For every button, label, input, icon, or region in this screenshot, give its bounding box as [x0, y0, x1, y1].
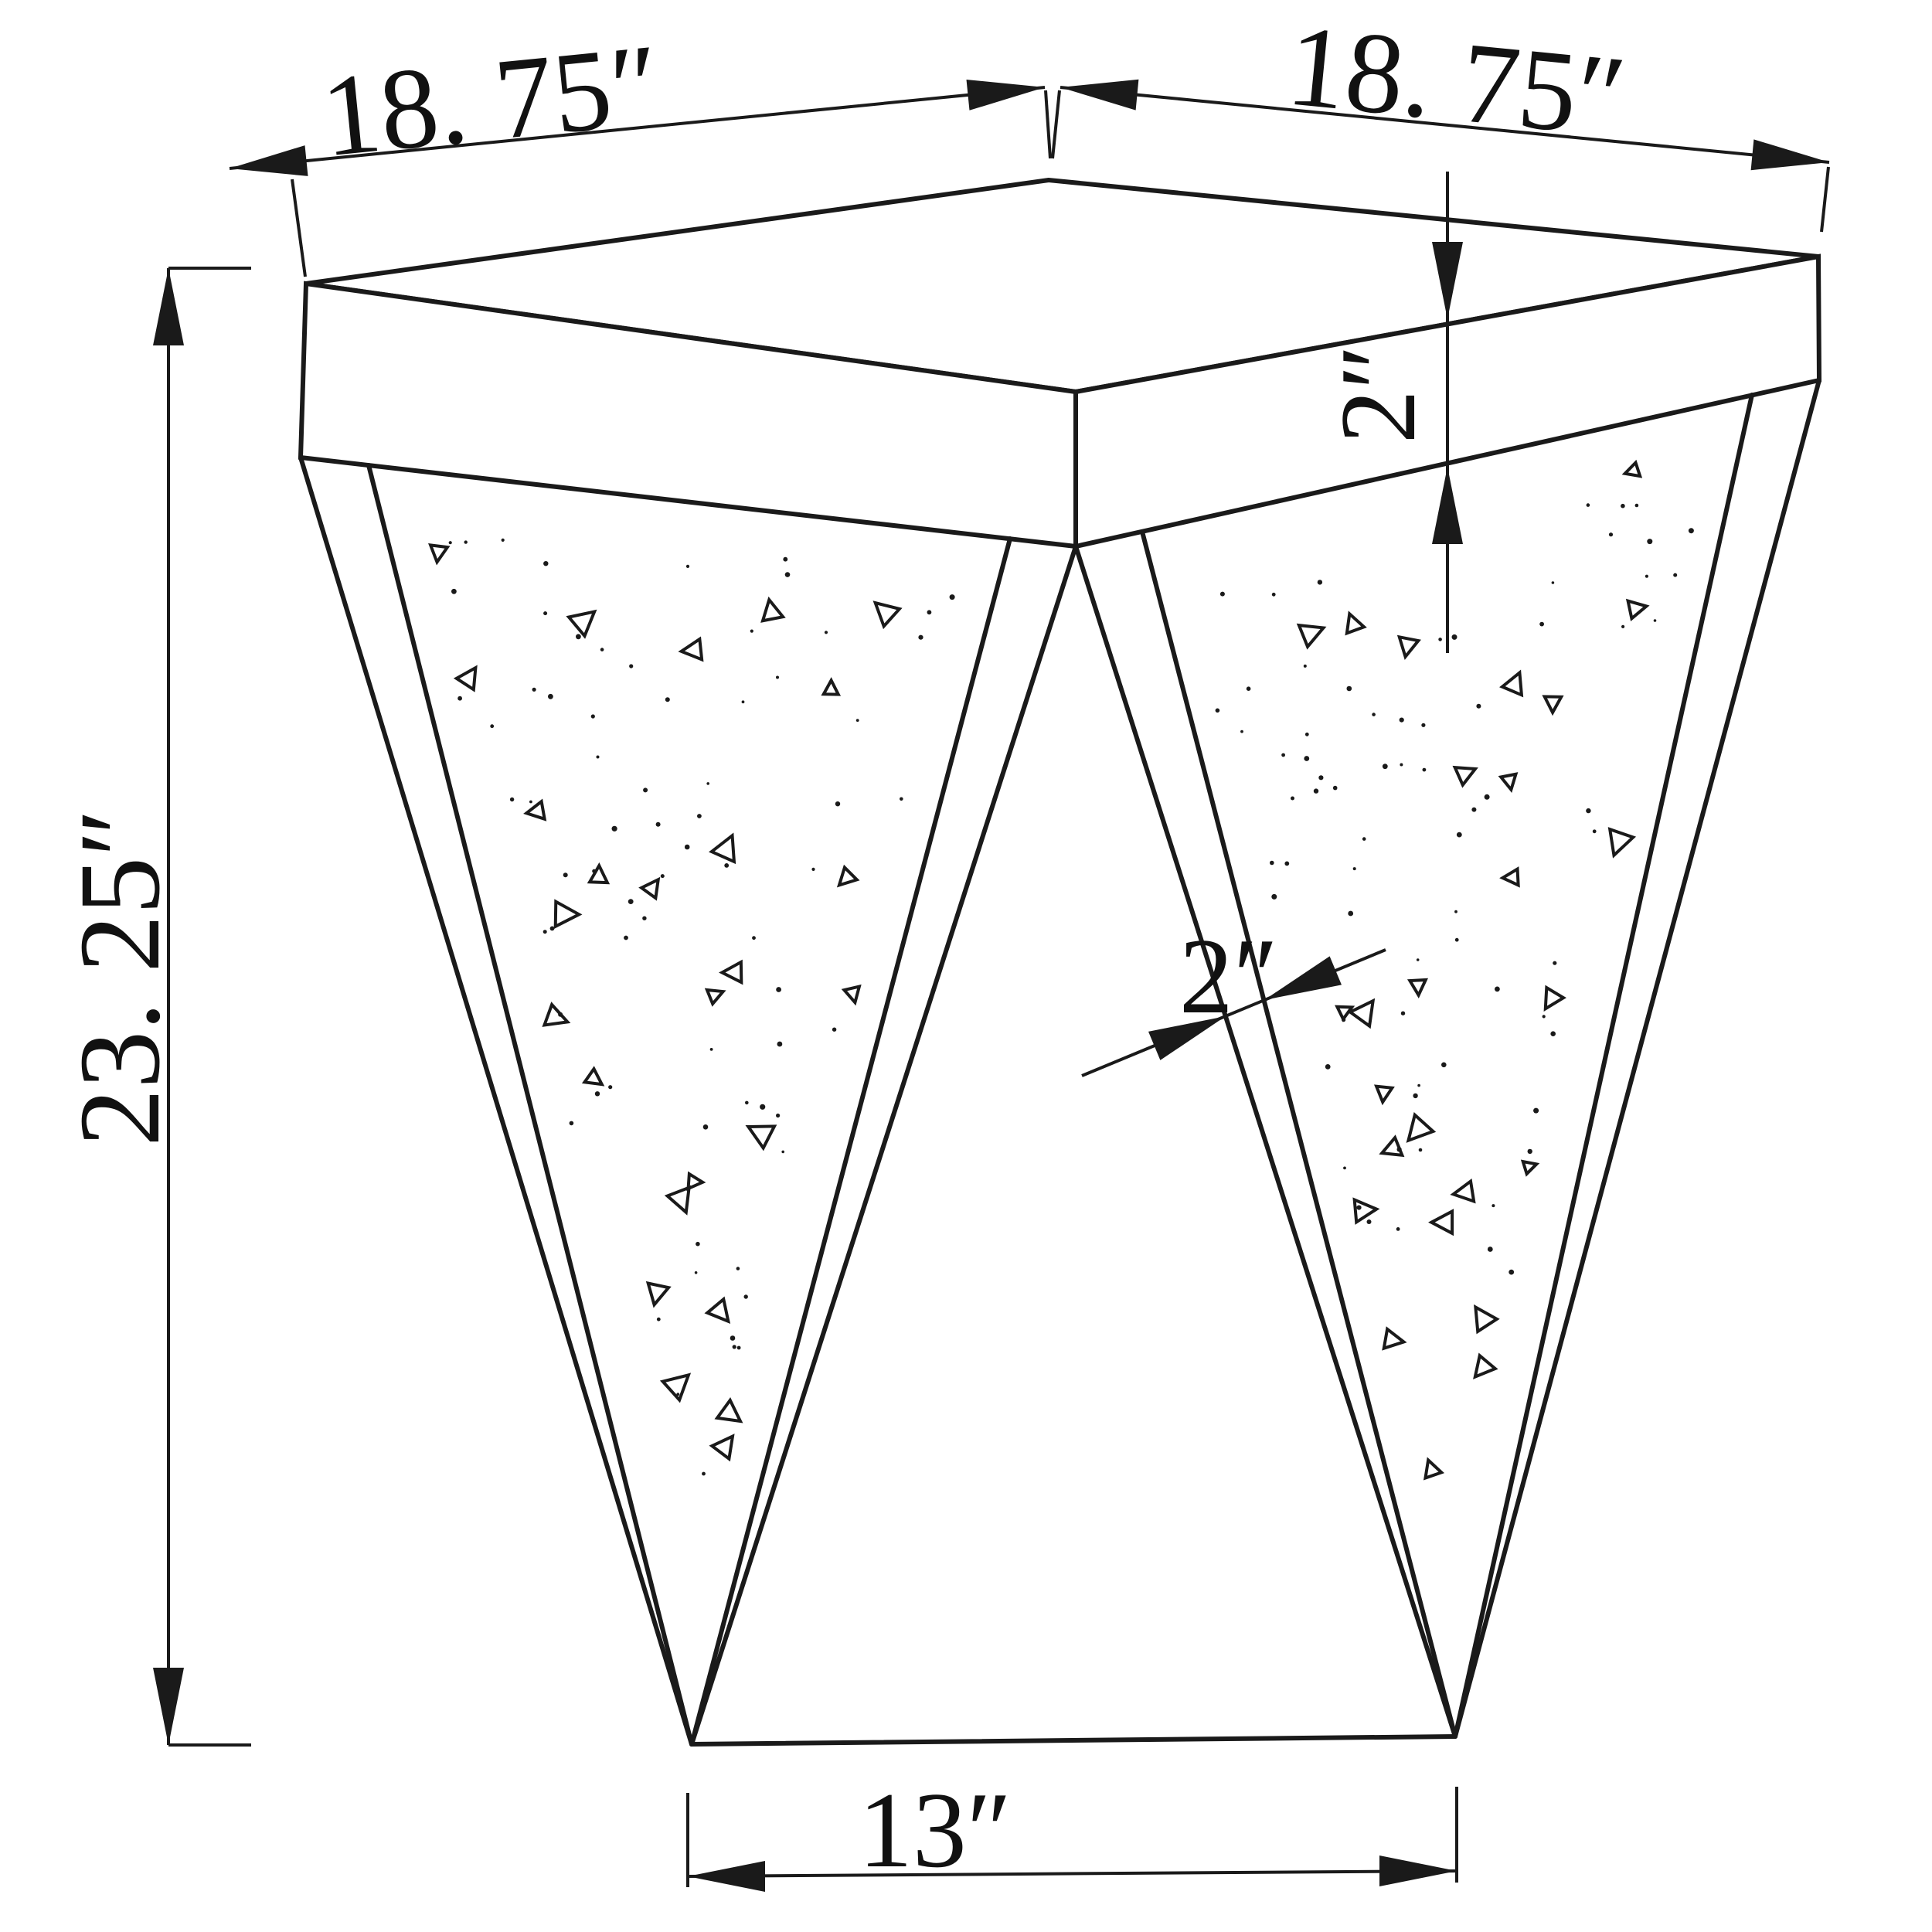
glitter-dot [657, 1318, 661, 1321]
dim-base-span: 13″ [688, 1770, 1457, 1892]
glitter-dot [1452, 634, 1458, 640]
glitter-triangle [525, 801, 544, 821]
dim-label-overall-height: 23. 25″ [56, 808, 184, 1146]
right-leg-mirror-panel-texture [1216, 463, 1694, 1478]
glitter-dot [1552, 581, 1555, 584]
glitter-dot [1621, 625, 1624, 628]
glitter-dot [1362, 837, 1366, 841]
glitter-dot [776, 1114, 780, 1117]
glitter-dot [608, 1085, 612, 1089]
glitter-triangle [644, 1284, 668, 1308]
glitter-dot [661, 874, 665, 878]
glitter-dot [781, 1151, 784, 1154]
glitter-dot [642, 917, 646, 920]
glitter-triangle [833, 868, 857, 892]
glitter-dot [1586, 808, 1590, 813]
glitter-dot [785, 572, 791, 577]
glitter-dot [543, 611, 547, 615]
glitter-dot [1441, 1063, 1447, 1068]
glitter-triangle [457, 662, 485, 689]
glitter-dot [702, 1472, 706, 1476]
drawing-canvas: 18. 75″ 18. 75″ 23. 25″ 2″ 2″ [0, 0, 1932, 1932]
dim-label-leg-frame-width: 2″ [1179, 917, 1278, 1036]
glitter-dot [750, 630, 753, 633]
glitter-dot [1421, 723, 1425, 727]
arrowhead-icon [1432, 467, 1463, 544]
glitter-dot [1621, 504, 1625, 509]
glitter-dot [1553, 961, 1556, 965]
glitter-dot [1455, 938, 1459, 942]
glitter-dot [1645, 575, 1648, 578]
glitter-dot [825, 631, 828, 634]
glitter-dot [1509, 1270, 1514, 1275]
arrowhead-icon [230, 145, 308, 176]
glitter-dot [1343, 1167, 1346, 1170]
glitter-dot [643, 787, 648, 792]
glitter-dot [563, 872, 568, 877]
glitter-dot [1291, 797, 1294, 801]
glitter-dot [835, 801, 840, 806]
glitter-dot [1654, 619, 1657, 622]
glitter-dot [1304, 756, 1309, 761]
glitter-triangle [844, 987, 862, 1005]
glitter-dot [1401, 1012, 1405, 1015]
glitter-dot [900, 798, 903, 801]
glitter-dot [685, 845, 690, 850]
glitter-dot [706, 782, 709, 785]
glitter-dot [591, 714, 595, 718]
glitter-triangle [1501, 774, 1519, 791]
glitter-triangle [1400, 1115, 1434, 1149]
glitter-dot [811, 868, 815, 871]
glitter-dot [776, 676, 779, 679]
arrowhead-icon [1060, 80, 1138, 111]
glitter-dot [550, 927, 555, 931]
glitter-dot [1356, 1206, 1361, 1210]
glitter-triangle [1299, 617, 1328, 647]
glitter-dot [730, 1335, 736, 1341]
glitter-triangle [1410, 980, 1426, 995]
glitter-triangle [1431, 1212, 1452, 1233]
glitter-dot [760, 1104, 765, 1110]
glitter-dot [1485, 794, 1490, 800]
glitter-dot [1367, 1219, 1372, 1224]
dim-label-base-span: 13″ [859, 1770, 1012, 1890]
glitter-dot [783, 557, 787, 562]
glitter-triangle [1396, 637, 1418, 658]
glitter-dot [1347, 686, 1352, 692]
glitter-dot [686, 565, 689, 568]
glitter-triangle [584, 1069, 606, 1091]
glitter-triangle [743, 1116, 774, 1148]
glitter-triangle [1523, 1158, 1539, 1173]
glitter-dot [1673, 573, 1677, 577]
glitter-dot [449, 541, 452, 544]
glitter-dot [777, 1042, 783, 1047]
glitter-dot [543, 561, 548, 566]
glitter-dot [1247, 686, 1251, 691]
glitter-triangle [1341, 611, 1364, 633]
arrowhead-icon [1379, 1855, 1457, 1886]
glitter-triangle [1502, 668, 1529, 695]
glitter-triangle [1379, 1138, 1403, 1162]
glitter-dot [1400, 718, 1404, 723]
glitter-dot [1281, 753, 1285, 757]
glitter-dot [736, 1267, 740, 1270]
glitter-triangle [1468, 1355, 1495, 1383]
glitter-dot [1305, 733, 1309, 736]
glitter-dot [490, 724, 494, 728]
glitter-dot [1609, 532, 1613, 536]
glitter-triangle [1544, 696, 1561, 713]
glitter-dot [1454, 910, 1458, 913]
glitter-triangle [1628, 597, 1648, 618]
glitter-triangle [717, 1400, 747, 1430]
glitter-triangle [1384, 1329, 1406, 1352]
glitter-dot [1348, 911, 1353, 917]
glitter-triangle [759, 598, 783, 621]
glitter-triangle [712, 1430, 741, 1458]
glitter-dot [1647, 539, 1652, 544]
glitter-dot [710, 1048, 713, 1051]
glitter-dot [696, 1242, 700, 1247]
glitter-dot [695, 1271, 698, 1274]
glitter-dot [1216, 709, 1220, 713]
glitter-dot [624, 936, 628, 940]
glitter-dot [742, 700, 745, 703]
arrowhead-icon [688, 1861, 765, 1892]
glitter-dot [1419, 1148, 1423, 1152]
glitter-dot [1593, 829, 1597, 833]
glitter-dot [1325, 1064, 1331, 1070]
glitter-dot [1417, 958, 1420, 961]
glitter-dot [457, 696, 462, 701]
glitter-dot [1539, 622, 1544, 627]
glitter-dot [1272, 593, 1276, 597]
glitter-dot [510, 798, 514, 801]
arrowhead-icon [1751, 139, 1829, 170]
glitter-dot [737, 1346, 741, 1350]
glitter-triangle [707, 1299, 736, 1328]
glitter-dot [1533, 1108, 1539, 1114]
glitter-dot [451, 589, 457, 594]
left-leg-frame [301, 457, 1076, 1744]
glitter-triangle [663, 1366, 697, 1400]
glitter-triangle [689, 1174, 703, 1189]
glitter-triangle [1375, 1087, 1392, 1103]
glitter-dot [1635, 504, 1639, 508]
glitter-dot [464, 540, 468, 543]
glitter-dot [1318, 775, 1323, 780]
glitter-triangle [1455, 760, 1479, 785]
dim-label-top-width-left: 18. 75″ [316, 20, 665, 182]
arrowhead-icon [153, 268, 184, 345]
glitter-triangle [544, 1005, 571, 1032]
table-dimension-diagram: 18. 75″ 18. 75″ 23. 25″ 2″ 2″ [0, 0, 1932, 1932]
glitter-dot [1438, 638, 1442, 641]
glitter-dot [597, 756, 600, 759]
glitter-dot [1476, 704, 1481, 709]
glitter-dot [724, 863, 729, 868]
glitter-dot [1383, 764, 1388, 769]
glitter-dot [532, 688, 536, 692]
glitter-dot [1304, 665, 1307, 668]
glitter-dot [1270, 861, 1274, 866]
glitter-dot [1271, 894, 1277, 900]
glitter-dot [1314, 788, 1318, 793]
glitter-dot [628, 899, 634, 904]
glitter-triangle [1452, 1182, 1475, 1205]
glitter-dot [703, 1124, 709, 1130]
glitter-triangle [680, 639, 702, 662]
glitter-triangle [722, 962, 741, 983]
glitter-dot [548, 694, 553, 699]
glitter-dot [744, 1294, 748, 1298]
glitter-dot [832, 1028, 836, 1032]
glitter-triangle [1537, 988, 1563, 1014]
glitter-dot [576, 634, 581, 639]
glitter-dot [1220, 592, 1225, 597]
glitter-triangle [1420, 1458, 1442, 1478]
glitter-dot [1284, 862, 1289, 866]
glitter-dot [950, 594, 955, 600]
glitter-dot [595, 1091, 600, 1096]
glitter-triangle [1502, 869, 1519, 886]
glitter-dot [1495, 987, 1500, 992]
glitter-dot [1413, 1094, 1417, 1098]
glitter-dot [1528, 1149, 1532, 1154]
glitter-dot [1457, 832, 1462, 838]
glitter-dot [1471, 808, 1476, 812]
arrowhead-icon [153, 1668, 184, 1745]
glitter-dot [629, 664, 633, 668]
glitter-triangle [868, 594, 900, 626]
glitter-dot [745, 1101, 749, 1105]
glitter-dot [927, 610, 932, 614]
glitter-triangle [556, 902, 580, 927]
glitter-dot [1492, 1204, 1495, 1207]
glitter-triangle [668, 1188, 697, 1216]
glitter-triangle [1355, 1198, 1378, 1222]
glitter-dot [570, 1121, 574, 1126]
arrowhead-icon [967, 80, 1046, 111]
glitter-dot [776, 987, 781, 992]
glitter-dot [1488, 1247, 1493, 1252]
glitter-dot [1353, 867, 1356, 870]
glitter-triangle [712, 831, 743, 862]
dim-label-top-width-right: 18. 75″ [1282, 1, 1631, 162]
glitter-triangle [429, 545, 447, 563]
glitter-dot [1333, 786, 1338, 791]
glitter-dot [600, 648, 604, 651]
glitter-triangle [1623, 463, 1640, 481]
glitter-dot [1543, 1015, 1546, 1018]
glitter-triangle [641, 875, 665, 899]
glitter-dot [529, 801, 532, 804]
glitter-triangle [1602, 829, 1633, 859]
dim-leg-frame-width: 2″ [1082, 917, 1386, 1076]
glitter-dot [752, 936, 756, 940]
glitter-dot [856, 719, 859, 722]
glitter-dot [1689, 528, 1694, 533]
glitter-dot [1318, 580, 1322, 584]
glitter-dot [543, 930, 547, 934]
glitter-dot [1396, 1227, 1400, 1231]
glitter-dot [656, 822, 661, 827]
glitter-triangle [1350, 994, 1383, 1026]
glitter-dot [612, 826, 617, 832]
base-bottom-edge [692, 1736, 1455, 1744]
glitter-dot [1417, 1084, 1420, 1087]
glitter-dot [502, 539, 505, 542]
glitter-dot [1372, 713, 1376, 716]
dim-overall-height: 23. 25″ [56, 268, 251, 1745]
glitter-triangle [707, 985, 726, 1004]
table-outline [301, 180, 1819, 1744]
glitter-dot [1550, 1031, 1556, 1036]
glitter-dot [1423, 768, 1427, 772]
dim-label-top-thickness: 2″ [1318, 345, 1438, 444]
glitter-dot [665, 697, 670, 702]
glitter-dot [1587, 503, 1590, 507]
glitter-triangle [824, 680, 838, 694]
glitter-triangle [569, 602, 602, 636]
glitter-dot [697, 814, 702, 818]
glitter-dot [918, 635, 923, 640]
glitter-triangle [1466, 1301, 1497, 1331]
glitter-dot [1400, 764, 1403, 767]
glitter-dot [733, 1345, 736, 1349]
glitter-dot [1240, 730, 1243, 733]
glitter-triangle [590, 866, 608, 883]
